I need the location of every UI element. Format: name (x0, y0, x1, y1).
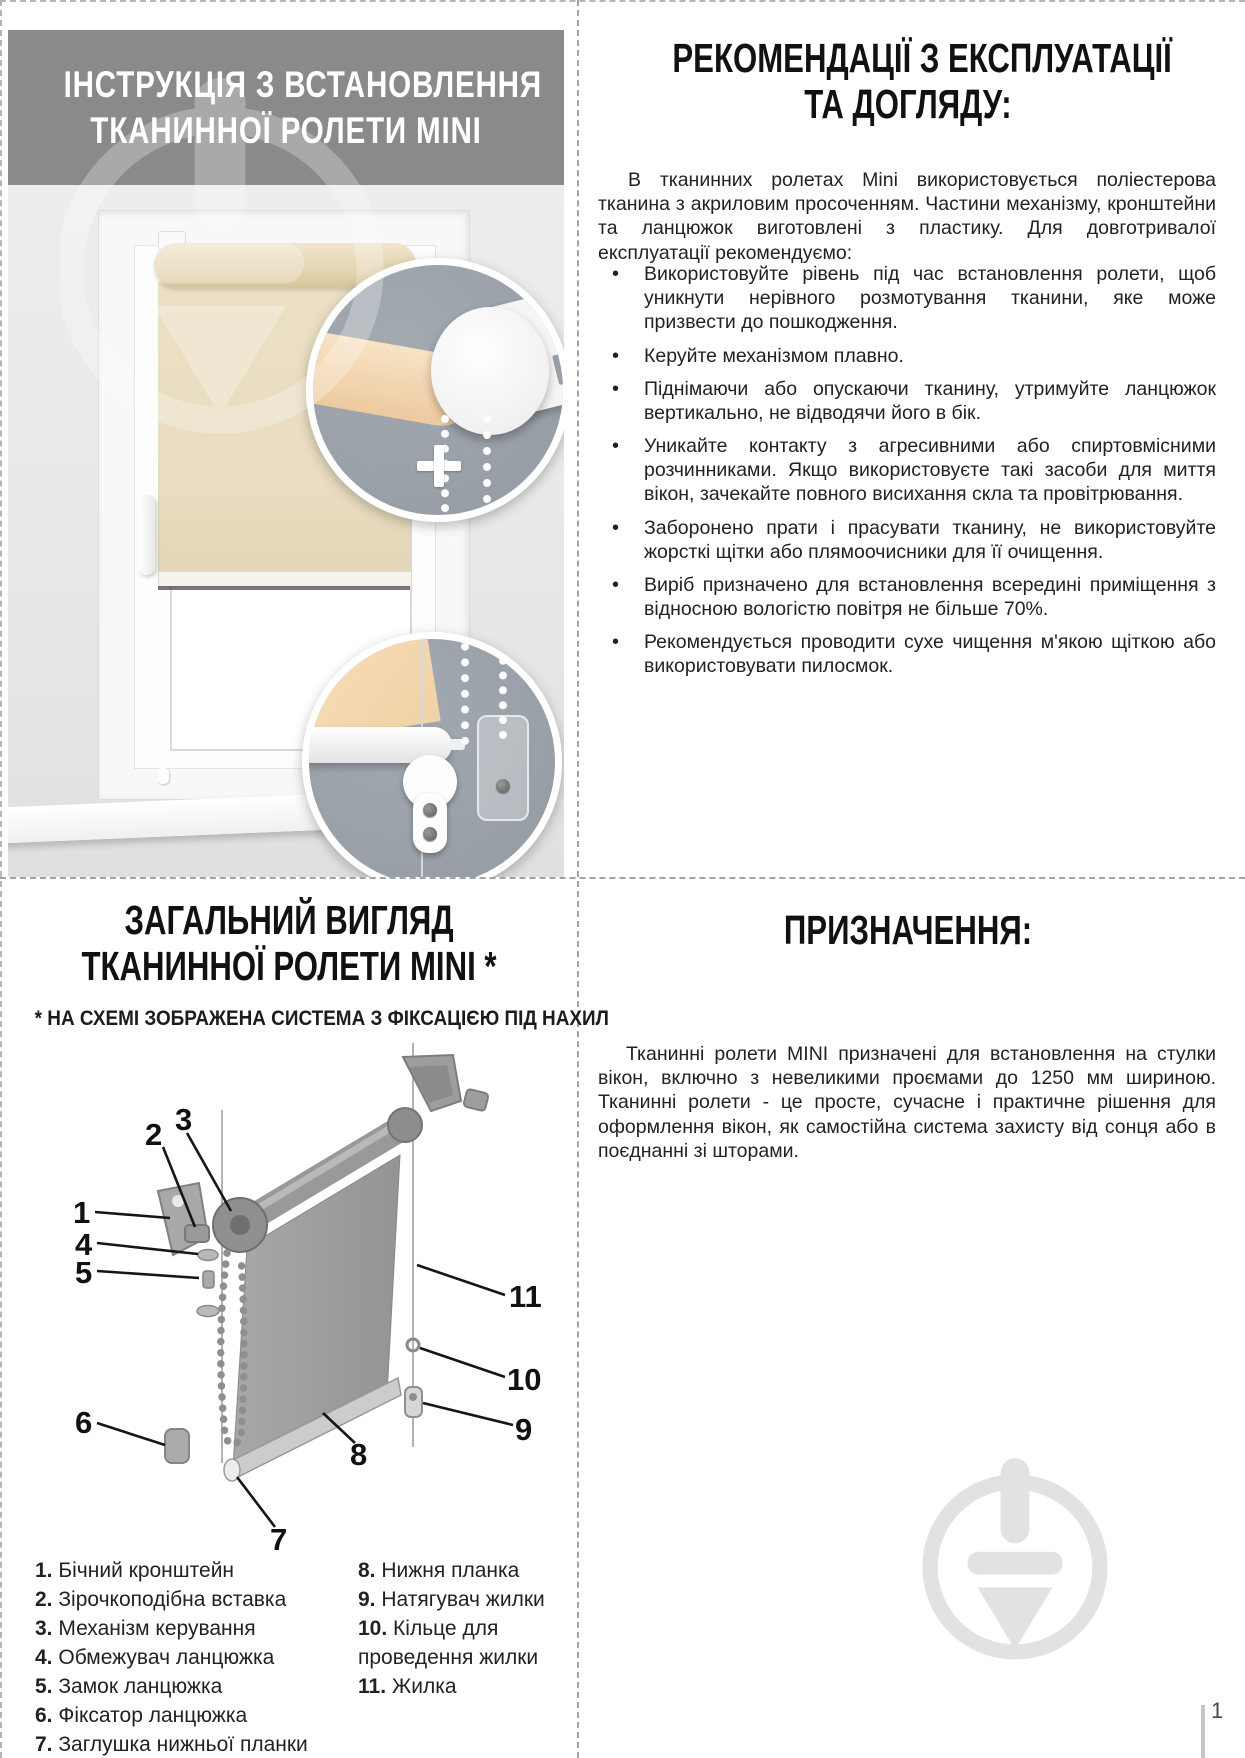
parts-legend-column-1: 1. Бічний кронштейн 2. Зірочкоподібна вс… (35, 1556, 335, 1758)
care-title-line2: ТА ДОГЛЯДУ: (672, 82, 1143, 128)
legend-item: 6. Фіксатор ланцюжка (35, 1701, 335, 1730)
roller-blind-exploded-diagram: 1 2 3 4 5 6 7 8 9 10 11 (15, 1015, 563, 1555)
legend-num: 3. (35, 1617, 53, 1640)
care-bullet-list: Використовуйте рівень під час встановлен… (598, 262, 1216, 688)
install-title-line1: ІНСТРУКЦІЯ З ВСТАНОВЛЕННЯ (64, 62, 509, 107)
diagram-label-6: 6 (75, 1405, 92, 1440)
legend-text: Бічний кронштейн (58, 1559, 234, 1582)
care-bullet-item: Використовуйте рівень під час встановлен… (598, 262, 1216, 335)
legend-text: Механізм керування (58, 1617, 255, 1640)
care-title-line1: РЕКОМЕНДАЦІЇ З ЕКСПЛУАТАЦІЇ (672, 36, 1143, 82)
page-number-bar (1201, 1705, 1205, 1758)
diagram-label-1: 1 (73, 1195, 90, 1230)
install-title-line2: ТКАНИННОЇ РОЛЕТИ MINI (64, 108, 509, 153)
control-mechanism-hub (230, 1215, 250, 1235)
legend-num: 8. (358, 1559, 376, 1582)
legend-num: 5. (35, 1675, 53, 1698)
chain-bottom-fixator (157, 768, 169, 784)
page-left-dashed-edge (0, 0, 2, 1758)
page-number: 1 (1211, 1698, 1223, 1724)
bottom-bar-closeup-inset (302, 632, 562, 877)
care-bullet-item: Керуйте механізмом плавно. (598, 344, 1216, 368)
diagram-label-11: 11 (509, 1279, 542, 1314)
window-handle (138, 495, 155, 575)
screw (423, 827, 437, 841)
legend-num: 4. (35, 1646, 53, 1669)
inset-chain (461, 632, 469, 745)
inset-chain (483, 415, 491, 519)
tensioner-screw (409, 1393, 417, 1401)
horizontal-dashed-divider (0, 877, 1245, 879)
diagram-label-9: 9 (515, 1412, 532, 1447)
legend-item: 8. Нижня планка (358, 1556, 586, 1585)
legend-num: 11. (358, 1675, 386, 1698)
tube-end-cap (388, 1108, 422, 1142)
legend-item: 10. Кільце для проведення жилки (358, 1614, 586, 1672)
legend-num: 9. (358, 1588, 376, 1611)
diagram-label-10: 10 (507, 1362, 541, 1397)
legend-num: 6. (35, 1704, 53, 1727)
legend-text: Замок ланцюжка (58, 1675, 222, 1698)
legend-item: 2. Зірочкоподібна вставка (35, 1585, 335, 1614)
screw (496, 779, 510, 793)
care-bullet-item: Виріб призначено для встановлення всеред… (598, 573, 1216, 621)
inset-line-tensioner-body (413, 793, 447, 853)
inset-clear-tensioner (477, 715, 529, 821)
brand-watermark-icon (900, 1455, 1130, 1685)
plate-slot (552, 354, 564, 385)
star-insert (185, 1225, 209, 1242)
purpose-title-text: ПРИЗНАЧЕННЯ: (672, 908, 1143, 954)
line-tensioner (405, 1387, 422, 1417)
window-photo (8, 185, 564, 877)
legend-text: Нижня планка (381, 1559, 519, 1582)
vertical-dashed-divider (577, 0, 579, 1758)
page-top-dashed-edge (0, 0, 1245, 2)
legend-num: 7. (35, 1733, 53, 1756)
legend-item: 5. Замок ланцюжка (35, 1672, 335, 1701)
legend-item: 11. Жилка (358, 1672, 586, 1701)
care-bullet-item: Уникайте контакту з агресивними або спир… (598, 434, 1216, 507)
purpose-title: ПРИЗНАЧЕННЯ: (598, 908, 1218, 954)
legend-text: Натягувач жилки (381, 1588, 544, 1611)
legend-num: 1. (35, 1559, 53, 1582)
diagram-label-5: 5 (75, 1255, 92, 1290)
care-bullet-item: Заборонено прати і прасувати тканину, не… (598, 516, 1216, 564)
legend-text: Зірочкоподібна вставка (58, 1588, 286, 1611)
diagram-label-3: 3 (175, 1102, 192, 1137)
install-title: ІНСТРУКЦІЯ З ВСТАНОВЛЕННЯ ТКАНИННОЇ РОЛЕ… (8, 62, 564, 152)
chain-limiter (198, 1250, 218, 1261)
legend-text: Обмежувач ланцюжка (58, 1646, 274, 1669)
chain-limiter-2 (197, 1306, 219, 1317)
legend-item: 4. Обмежувач ланцюжка (35, 1643, 335, 1672)
legend-item: 7. Заглушка нижньої планки (35, 1730, 335, 1758)
overview-title-line2: ТКАНИННОЇ РОЛЕТИ MINI * (69, 944, 508, 990)
legend-item: 3. Механізм керування (35, 1614, 335, 1643)
roller-blind-bottom-bar (158, 571, 412, 587)
overview-title-line1: ЗАГАЛЬНИЙ ВИГЛЯД (69, 898, 508, 944)
chain-fixator (165, 1429, 189, 1463)
screw (423, 803, 437, 817)
overview-title: ЗАГАЛЬНИЙ ВИГЛЯД ТКАНИННОЇ РОЛЕТИ MINI * (0, 898, 578, 990)
chain-lock (203, 1271, 214, 1288)
roller-blind-shadow (158, 586, 410, 590)
mechanism-closeup-inset (306, 258, 564, 522)
care-bullet-item: Піднімаючи або опускаючи тканину, утриму… (598, 377, 1216, 425)
install-title-band: ІНСТРУКЦІЯ З ВСТАНОВЛЕННЯ ТКАНИННОЇ РОЛЕ… (8, 30, 564, 185)
legend-text: Фіксатор ланцюжка (58, 1704, 247, 1727)
legend-text: Заглушка нижньої планки (58, 1733, 307, 1756)
parts-legend-column-2: 8. Нижня планка 9. Натягувач жилки 10. К… (358, 1556, 586, 1701)
legend-num: 2. (35, 1588, 53, 1611)
chain-connector (434, 445, 444, 487)
care-bullet-item: Рекомендується проводити сухе чищення м'… (598, 630, 1216, 678)
diagram-label-8: 8 (350, 1437, 367, 1472)
legend-item: 1. Бічний кронштейн (35, 1556, 335, 1585)
instruction-leaflet-page: ІНСТРУКЦІЯ З ВСТАНОВЛЕННЯ ТКАНИННОЇ РОЛЕ… (0, 0, 1245, 1758)
legend-item: 9. Натягувач жилки (358, 1585, 586, 1614)
legend-num: 10. (358, 1617, 387, 1640)
legend-text: Жилка (392, 1675, 457, 1698)
diagram-label-7: 7 (270, 1522, 287, 1555)
star-insert-right (463, 1089, 489, 1112)
diagram-label-2: 2 (145, 1117, 162, 1152)
care-intro-paragraph: В тканинних ролетах Mini використовуєтьс… (598, 168, 1216, 265)
purpose-paragraph: Тканинні ролети MINI призначені для вста… (598, 1042, 1216, 1163)
care-title: РЕКОМЕНДАЦІЇ З ЕКСПЛУАТАЦІЇ ТА ДОГЛЯДУ: (598, 36, 1218, 128)
